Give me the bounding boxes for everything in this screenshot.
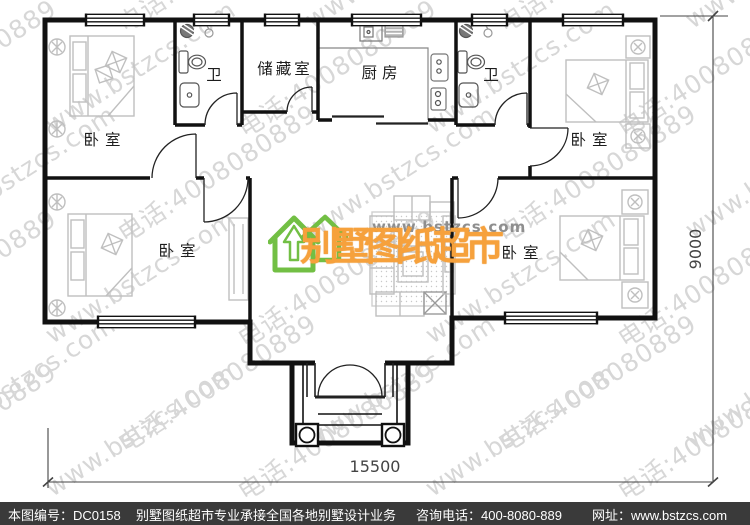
bathroom-right-fixtures [458, 23, 492, 107]
site-logo: www.bstzcs.com 别墅图纸超市 [268, 202, 548, 286]
footer-bar: 本图编号：DC0158 别墅图纸超市专业承接全国各地别墅设计业务 咨询电话：40… [0, 502, 750, 525]
footer-service-text: 别墅图纸超市专业承接全国各地别墅设计业务 [136, 505, 396, 524]
door-storage [287, 87, 312, 112]
blueprint-page: www.bstzcs.com电话:4008080889www.bstzcs.co… [0, 0, 750, 525]
window [264, 14, 300, 27]
fixtures-layer [179, 23, 492, 120]
door-bedroom-top-right [530, 128, 568, 166]
door-bathroom-left [205, 93, 237, 125]
room-label-bedroom-top-left: 卧室 [83, 131, 126, 149]
room-label-kitchen: 厨房 [361, 64, 402, 82]
room-label-bathroom-left: 卫 [206, 67, 222, 84]
bathroom-left-fixtures [179, 23, 213, 107]
window [97, 316, 196, 329]
room-label-bedroom-bottom-left: 卧室 [158, 242, 201, 260]
room-label-bedroom-top-right: 卧室 [570, 131, 613, 149]
dimension-width: 15500 [350, 457, 401, 476]
window [562, 14, 624, 27]
dimension-height: 9000 [686, 229, 705, 270]
footer-plan-number: 本图编号：DC0158 [8, 505, 121, 524]
footer-hotline: 咨询电话：400-8080-889 [416, 505, 562, 524]
bed-top-left [49, 36, 134, 137]
logo-brand-text: 别墅图纸超市 [300, 228, 498, 267]
window [504, 312, 598, 325]
door-bathroom-right [495, 93, 527, 125]
window [193, 14, 230, 27]
room-label-bathroom-right: 卫 [483, 67, 499, 84]
window [351, 14, 422, 27]
window [85, 14, 145, 27]
porch [296, 363, 404, 446]
kitchen-sliding-door [332, 117, 428, 124]
footer-website: 网址：www.bstzcs.com [592, 505, 727, 524]
bed-bottom-right [560, 190, 648, 308]
bed-bottom-left [49, 194, 248, 316]
entry-double-door [307, 363, 393, 397]
room-label-storage: 储藏室 [257, 60, 313, 78]
window [471, 14, 508, 27]
door-bedroom-top-left [152, 134, 196, 178]
door-bedroom-bottom-left [204, 178, 248, 222]
